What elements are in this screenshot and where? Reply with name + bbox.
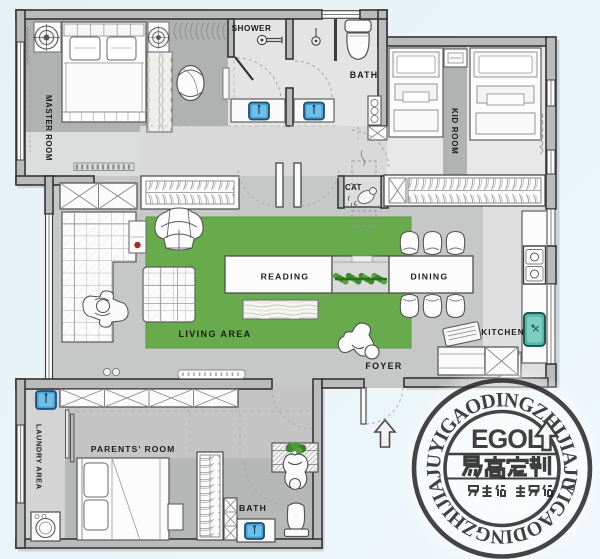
svg-text:EGOL: EGOL bbox=[471, 424, 543, 454]
svg-text:KID ROOM: KID ROOM bbox=[450, 108, 459, 155]
svg-text:PARENTS’ ROOM: PARENTS’ ROOM bbox=[91, 444, 175, 454]
svg-text:KITCHEN: KITCHEN bbox=[481, 328, 524, 337]
svg-text:BATH: BATH bbox=[350, 70, 379, 80]
svg-text:SHOWER: SHOWER bbox=[232, 24, 272, 33]
svg-text:READING: READING bbox=[261, 272, 310, 282]
svg-text:FOYER: FOYER bbox=[365, 361, 402, 371]
svg-text:CAT: CAT bbox=[345, 183, 362, 192]
svg-text:BATH: BATH bbox=[239, 503, 267, 513]
svg-text:LAUNDRY AREA: LAUNDRY AREA bbox=[35, 424, 44, 490]
svg-text:DINING: DINING bbox=[411, 272, 449, 282]
svg-text:LIVING AREA: LIVING AREA bbox=[178, 329, 251, 339]
svg-text:MASTER ROOM: MASTER ROOM bbox=[44, 95, 53, 161]
